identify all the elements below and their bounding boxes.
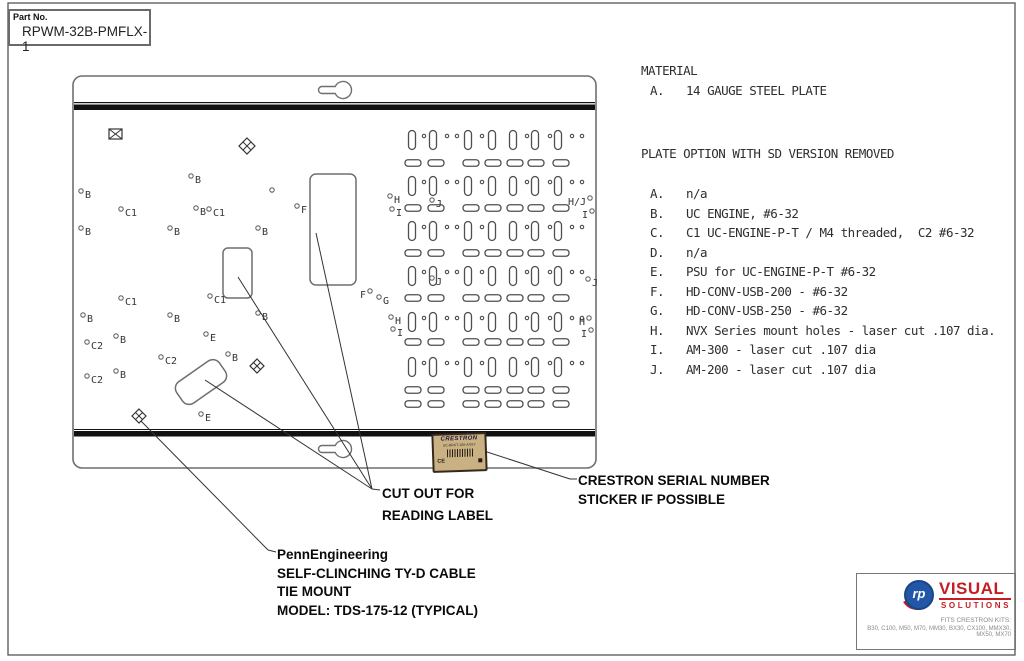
options-title: PLATE OPTION WITH SD VERSION REMOVED [641, 146, 894, 161]
sticker-square [478, 458, 482, 462]
note-text: C1 UC-ENGINE-P-T / M4 threaded, C2 #6-32 [686, 223, 974, 243]
marker-label: G [383, 296, 389, 307]
part-number-box: Part No. RPWM-32B-PMFLX-1 [8, 9, 151, 46]
cutout-callout: CUT OUT FOR READING LABEL [382, 483, 493, 527]
plate-band [74, 102, 595, 103]
marker-label: C1 [213, 208, 225, 219]
note-letter: A. [650, 81, 686, 101]
fits-kits-title: FITS CRESTRON KITS: [941, 617, 1011, 624]
marker-label: B [85, 227, 91, 238]
note-text: n/a [686, 184, 707, 204]
leader-line [372, 489, 380, 490]
marker-label: J [436, 199, 442, 210]
logo-word-solutions: SOLUTIONS [941, 601, 1011, 610]
option-item: I.AM-300 - laser cut .107 dia [650, 340, 995, 360]
material-item: A. 14 GAUGE STEEL PLATE [650, 81, 827, 101]
tie-mount-line4: MODEL: TDS-175-12 (TYPICAL) [277, 602, 478, 621]
serial-callout-line1: CRESTRON SERIAL NUMBER [578, 471, 770, 490]
marker-label: H [395, 316, 401, 327]
note-letter: C. [650, 223, 686, 243]
crestron-serial-sticker: CRESTRON UC-BRKT-100-ASSY CE [431, 432, 487, 473]
ce-mark: CE [437, 459, 445, 465]
note-text: UC ENGINE, #6-32 [686, 204, 798, 224]
plate-outline [73, 76, 596, 468]
note-letter: H. [650, 321, 686, 341]
option-item: A.n/a [650, 184, 995, 204]
note-letter: F. [650, 282, 686, 302]
fits-kits-list: B30, C100, M50, M70, MM30, BX30, CX100, … [859, 626, 1011, 638]
note-letter: E. [650, 262, 686, 282]
options-list: A.n/aB.UC ENGINE, #6-32C.C1 UC-ENGINE-P-… [650, 184, 995, 379]
note-letter: D. [650, 243, 686, 263]
plate-band [74, 105, 595, 111]
logo-word-visual: VISUAL [939, 579, 1004, 599]
rp-logo-icon: rp [904, 580, 934, 610]
cutout-callout-line1: CUT OUT FOR [382, 483, 493, 505]
option-item: C.C1 UC-ENGINE-P-T / M4 threaded, C2 #6-… [650, 223, 995, 243]
marker-label: C2 [91, 375, 103, 386]
marker-label: H/J [568, 197, 586, 208]
note-text: NVX Series mount holes - laser cut .107 … [686, 321, 995, 341]
serial-callout-line2: STICKER IF POSSIBLE [578, 490, 770, 509]
cutout-callout-line2: READING LABEL [382, 505, 493, 527]
part-number-value: RPWM-32B-PMFLX-1 [22, 24, 149, 54]
tie-mount-callout: PennEngineering SELF-CLINCHING TY-D CABL… [277, 546, 478, 620]
marker-label: J [436, 277, 442, 288]
sticker-model: UC-BRKT-100-ASSY [434, 442, 485, 448]
marker-label: I [581, 329, 587, 340]
serial-callout: CRESTRON SERIAL NUMBER STICKER IF POSSIB… [578, 471, 770, 509]
marker-label: C1 [125, 208, 137, 219]
marker-label: H [579, 317, 585, 328]
note-text: AM-200 - laser cut .107 dia [686, 360, 876, 380]
vendor-logo-box: rp VISUAL SOLUTIONS FITS CRESTRON KITS: … [856, 573, 1016, 650]
marker-label: H [394, 195, 400, 206]
option-item: J.AM-200 - laser cut .107 dia [650, 360, 995, 380]
note-letter: J. [650, 360, 686, 380]
marker-label: E [205, 413, 211, 424]
marker-label: B [85, 190, 91, 201]
marker-label: C2 [91, 341, 103, 352]
note-letter: B. [650, 204, 686, 224]
note-text: PSU for UC-ENGINE-P-T #6-32 [686, 262, 876, 282]
marker-label: B [174, 314, 180, 325]
marker-label: B [232, 353, 238, 364]
leader-line [268, 550, 276, 552]
drawing-sheet: BBC1BC1FBBBC1C1BBBBEC2BC2BC2EFGHIJH/JIJJ… [0, 0, 1024, 661]
tie-mount-line3: TIE MOUNT [277, 583, 478, 602]
marker-label: C2 [165, 356, 177, 367]
tie-mount-line2: SELF-CLINCHING TY-D CABLE [277, 565, 478, 584]
marker-label: I [582, 210, 588, 221]
option-item: D.n/a [650, 243, 995, 263]
marker-label: F [301, 205, 307, 216]
marker-label: B [120, 335, 126, 346]
marker-label: E [210, 333, 216, 344]
option-item: G.HD-CONV-USB-250 - #6-32 [650, 301, 995, 321]
option-item: B.UC ENGINE, #6-32 [650, 204, 995, 224]
marker-label: B [262, 312, 268, 323]
marker-label: I [397, 328, 403, 339]
marker-label: B [174, 227, 180, 238]
marker-label: B [87, 314, 93, 325]
note-letter: A. [650, 184, 686, 204]
marker-label: C1 [125, 297, 137, 308]
part-number-label: Part No. [13, 12, 48, 22]
note-letter: G. [650, 301, 686, 321]
note-text: HD-CONV-USB-250 - #6-32 [686, 301, 848, 321]
marker-label: I [396, 208, 402, 219]
option-item: H.NVX Series mount holes - laser cut .10… [650, 321, 995, 341]
marker-label: B [200, 207, 206, 218]
marker-label: F [360, 290, 366, 301]
material-title: MATERIAL [641, 63, 697, 78]
marker-label: B [120, 370, 126, 381]
marker-label: J [592, 278, 598, 289]
note-letter: I. [650, 340, 686, 360]
marker-label: B [195, 175, 201, 186]
marker-label: C1 [214, 295, 226, 306]
note-text: AM-300 - laser cut .107 dia [686, 340, 876, 360]
logo-monogram: rp [906, 586, 932, 601]
option-item: E.PSU for UC-ENGINE-P-T #6-32 [650, 262, 995, 282]
note-text: HD-CONV-USB-200 - #6-32 [686, 282, 848, 302]
note-text: n/a [686, 243, 707, 263]
tie-mount-line1: PennEngineering [277, 546, 478, 565]
marker-label: B [262, 227, 268, 238]
logo-underline [939, 598, 1011, 600]
option-item: F.HD-CONV-USB-200 - #6-32 [650, 282, 995, 302]
note-text: 14 GAUGE STEEL PLATE [686, 81, 827, 101]
